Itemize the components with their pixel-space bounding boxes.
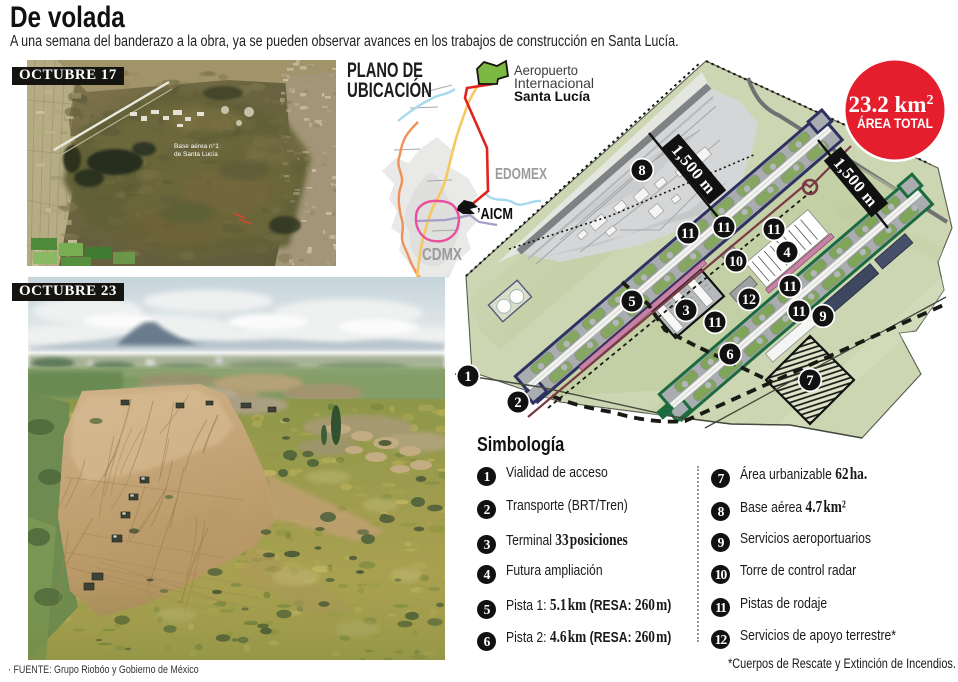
svg-text:9: 9 xyxy=(819,309,826,325)
svg-text:23.2 km2: 23.2 km2 xyxy=(849,92,934,117)
svg-text:UBICACIÓN: UBICACIÓN xyxy=(347,78,432,102)
svg-text:3: 3 xyxy=(682,303,689,319)
svg-text:6: 6 xyxy=(726,347,733,363)
svg-text:8: 8 xyxy=(638,163,645,179)
svg-text:12: 12 xyxy=(742,292,756,308)
svg-text:11: 11 xyxy=(681,226,695,242)
svg-text:2: 2 xyxy=(514,395,521,411)
svg-text:5: 5 xyxy=(628,294,635,310)
svg-text:1: 1 xyxy=(464,369,471,385)
svg-text:4: 4 xyxy=(783,245,790,261)
svg-text:11: 11 xyxy=(717,220,731,236)
svg-text:11: 11 xyxy=(783,279,797,295)
svg-text:10: 10 xyxy=(729,254,743,270)
svg-text:de Santa Lucía: de Santa Lucía xyxy=(174,151,218,158)
svg-text:Base aérea n°1: Base aérea n°1 xyxy=(174,142,219,150)
svg-text:11: 11 xyxy=(708,315,722,331)
svg-text:ÁREA TOTAL: ÁREA TOTAL xyxy=(857,116,933,131)
svg-text:7: 7 xyxy=(806,373,813,389)
svg-text:11: 11 xyxy=(792,304,806,320)
svg-text:11: 11 xyxy=(767,222,781,238)
